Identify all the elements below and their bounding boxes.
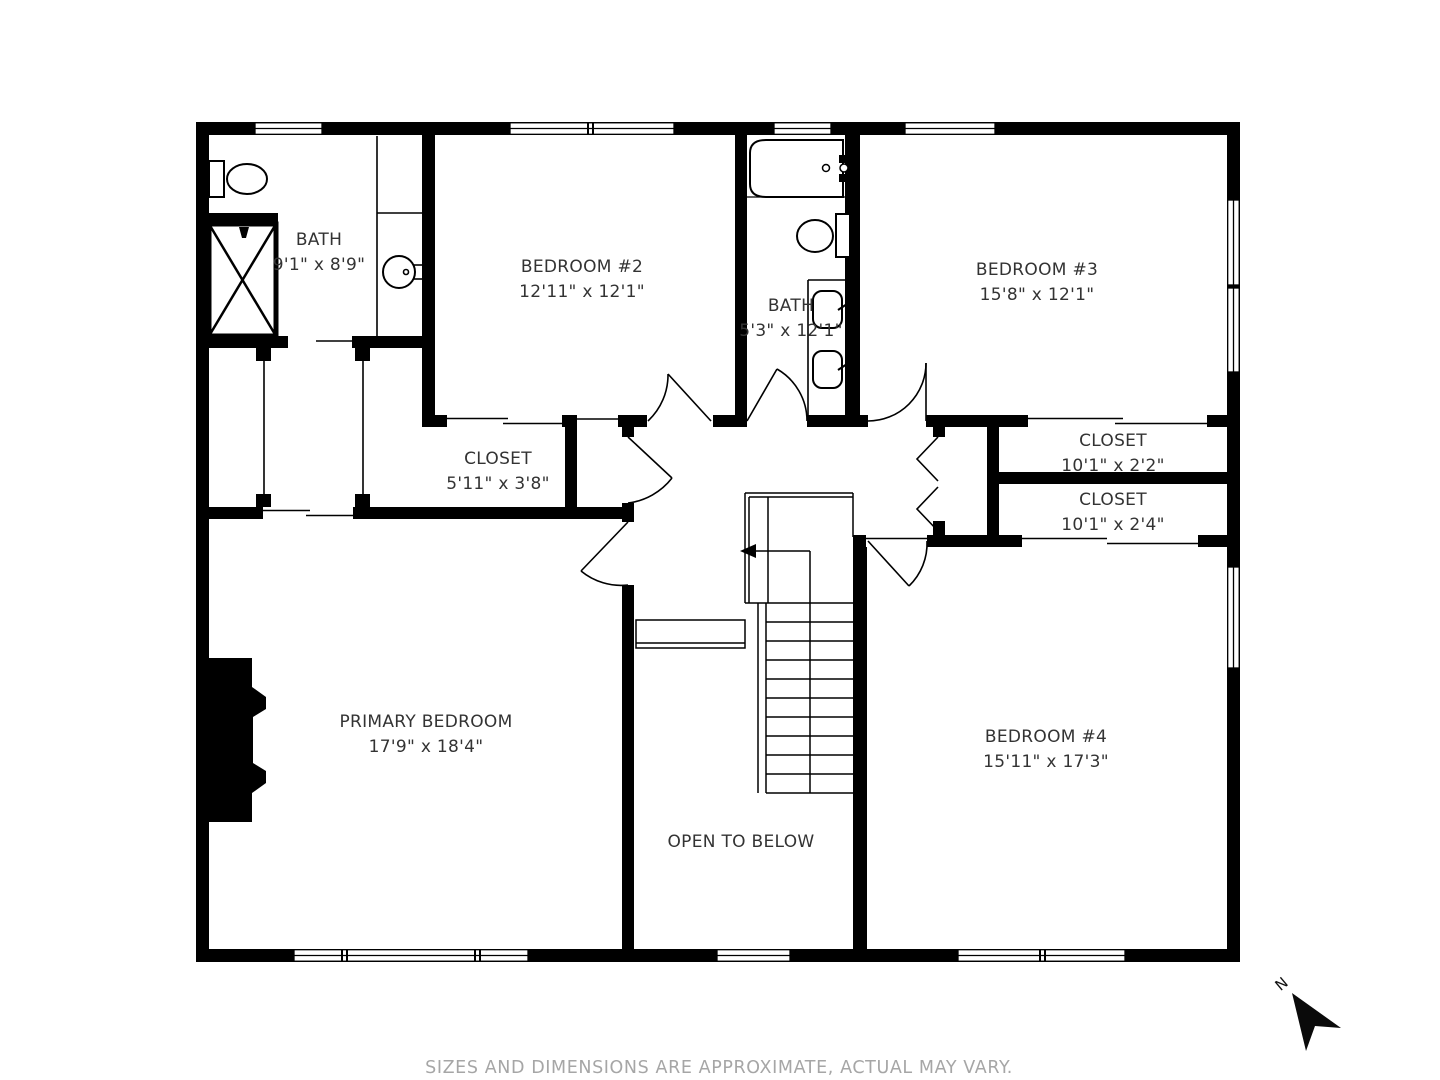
floorplan-drawing (0, 0, 1440, 1080)
wall-stub (256, 494, 271, 507)
wall-stub (355, 494, 370, 507)
room-label-bath-2: BATH 5'3" x 12'1" (739, 294, 843, 344)
void-railing (636, 620, 745, 648)
window (774, 123, 831, 135)
wall-bedroom4-west (853, 547, 867, 962)
open-to-below-label: OPEN TO BELOW (667, 832, 814, 852)
room-name: CLOSET (446, 447, 550, 472)
room-dims: 10'1" x 2'2" (1061, 454, 1165, 479)
room-name: BEDROOM #4 (983, 725, 1109, 750)
room-dims: 12'11" x 12'1" (519, 280, 645, 305)
window (1228, 567, 1240, 668)
room-label-closet-1: CLOSET 5'11" x 3'8" (446, 447, 550, 497)
stair-direction-arrow-icon (740, 544, 756, 558)
room-label-bedroom-4: BEDROOM #4 15'11" x 17'3" (983, 725, 1109, 775)
window (510, 123, 674, 135)
disclaimer-text: SIZES AND DIMENSIONS ARE APPROXIMATE, AC… (425, 1058, 1013, 1078)
room-dims: 10'1" x 2'4" (1061, 513, 1165, 538)
window (1228, 288, 1240, 372)
door-bedroom2 (648, 374, 711, 421)
room-name: CLOSET (1061, 488, 1165, 513)
vanity-sink-icon (377, 136, 423, 342)
wall-stub (355, 348, 370, 361)
room-name: PRIMARY BEDROOM (339, 710, 512, 735)
wall-outer-top (196, 122, 1240, 135)
shower-icon (209, 224, 276, 336)
room-name: BEDROOM #3 (976, 258, 1098, 283)
door-bath2 (747, 369, 807, 421)
wall-bath1-east (422, 135, 435, 427)
window (958, 950, 1125, 962)
room-name: BEDROOM #2 (519, 255, 645, 280)
room-dims: 9'1" x 8'9" (273, 253, 365, 278)
stairs (636, 493, 853, 793)
window (905, 123, 995, 135)
wall-shower-top (196, 213, 278, 222)
window (255, 123, 322, 135)
room-dims: 5'3" x 12'1" (739, 319, 843, 344)
north-arrow-icon (1292, 993, 1341, 1051)
floorplan-page: BATH 9'1" x 8'9" BEDROOM #2 12'11" x 12'… (0, 0, 1440, 1080)
room-dims: 17'9" x 18'4" (339, 735, 512, 760)
chimney (200, 658, 266, 822)
wall-closet511-east (565, 415, 577, 519)
room-dims: 15'8" x 12'1" (976, 283, 1098, 308)
toilet-icon (797, 214, 850, 257)
door-bedroom3 (868, 363, 926, 421)
closet-rods (264, 360, 363, 494)
door-bedroom4 (868, 541, 927, 586)
room-label-bath-1: BATH 9'1" x 8'9" (273, 228, 365, 278)
room-name: BATH (273, 228, 365, 253)
bathtub-icon (747, 140, 848, 197)
wall-stub (256, 348, 271, 361)
room-dims: 5'11" x 3'8" (446, 472, 550, 497)
door-primary (581, 522, 628, 585)
room-dims: 15'11" x 17'3" (983, 750, 1109, 775)
room-name: BATH (739, 294, 843, 319)
wall-bath2-west (735, 135, 747, 415)
window (717, 950, 790, 962)
door-hall-closet (628, 437, 672, 503)
toilet-icon (209, 161, 267, 197)
window (294, 950, 528, 962)
room-name: CLOSET (1061, 429, 1165, 454)
room-label-primary-bedroom: PRIMARY BEDROOM 17'9" x 18'4" (339, 710, 512, 760)
room-label-bedroom-2: BEDROOM #2 12'11" x 12'1" (519, 255, 645, 305)
room-label-bedroom-3: BEDROOM #3 15'8" x 12'1" (976, 258, 1098, 308)
wall-closets-west (987, 415, 999, 547)
room-label-closet-3: CLOSET 10'1" x 2'4" (1061, 488, 1165, 538)
room-label-closet-2: CLOSET 10'1" x 2'2" (1061, 429, 1165, 479)
window (1228, 200, 1240, 285)
